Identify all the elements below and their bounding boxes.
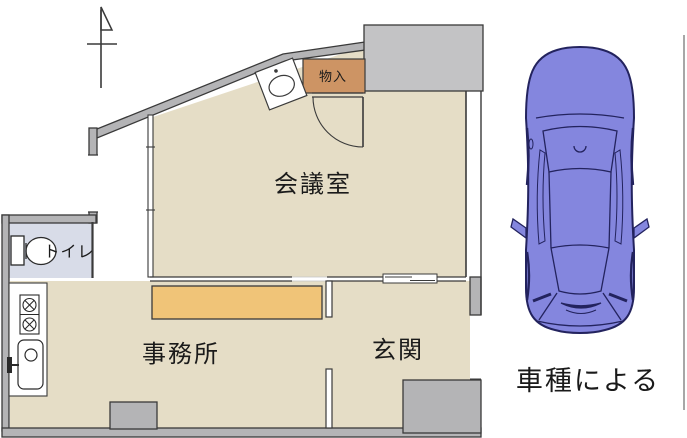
car-caption: 車種による (516, 366, 660, 396)
pillar (110, 402, 157, 429)
floor-plan-image: 会議室 事務所 玄関 トイレ 物入 (0, 0, 687, 438)
car-top-view (511, 47, 649, 333)
car-body (526, 47, 634, 333)
meeting-room-label: 会議室 (274, 171, 352, 198)
sliding-door (383, 274, 437, 283)
toilet-label: トイレ (43, 244, 94, 261)
left-wall-window (88, 155, 98, 212)
counter (152, 286, 322, 319)
entrance-step (403, 380, 481, 433)
office-label: 事務所 (142, 341, 220, 368)
entrance-label: 玄関 (372, 337, 424, 364)
left-wall (2, 215, 9, 431)
top-right-wall-block (364, 25, 483, 91)
toilet-top-wall (2, 215, 96, 223)
storage-label: 物入 (319, 69, 347, 84)
entrance-right-wall (470, 277, 481, 315)
stove-icon (20, 295, 39, 334)
north-arrow-icon (87, 7, 117, 88)
